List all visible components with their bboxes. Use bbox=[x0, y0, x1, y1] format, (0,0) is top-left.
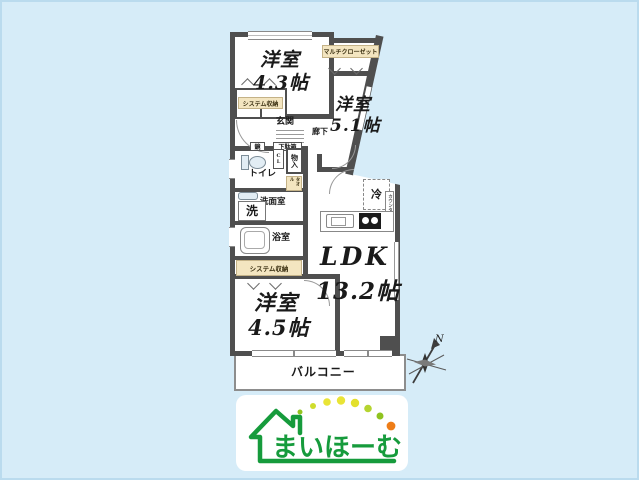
balcony-label: バルコニー bbox=[291, 366, 356, 378]
window-left-toilet bbox=[229, 159, 235, 179]
closet-cl-label: CL bbox=[276, 153, 282, 165]
washbasin-icon bbox=[238, 192, 258, 200]
logo: まいほーむ bbox=[236, 395, 408, 471]
floorplan-page: システム収納 マルチクローゼット 玄関 下駄箱 鏡 廊下 トイレ CL 物入 タ… bbox=[0, 0, 639, 480]
bathtub-icon bbox=[240, 227, 270, 254]
multi-closet-label: マルチクローゼット bbox=[323, 47, 377, 56]
mullion bbox=[367, 351, 369, 356]
compass-icon: N bbox=[402, 332, 450, 390]
system-storage-top-label-box: システム収納 bbox=[238, 97, 283, 109]
system-storage-bottom-box: システム収納 bbox=[236, 260, 302, 276]
sink-basin bbox=[331, 217, 346, 226]
sliding-window-left bbox=[252, 350, 336, 357]
corridor-label: 廊下 bbox=[312, 127, 328, 135]
compass-north-label: N bbox=[434, 334, 445, 345]
toilet-bowl-icon bbox=[249, 156, 266, 169]
logo-graphic: まいほーむ bbox=[236, 395, 408, 471]
ldk-size: 13.2帖 bbox=[316, 272, 400, 306]
multi-closet-label-box: マルチクローゼット bbox=[322, 45, 379, 58]
mirror-label-box: 鏡 bbox=[250, 142, 265, 151]
window-left-bath bbox=[229, 227, 235, 247]
logo-dot bbox=[337, 396, 345, 404]
window-top bbox=[248, 31, 312, 40]
logo-dot bbox=[387, 422, 396, 431]
towel-label: タオル bbox=[288, 177, 300, 190]
logo-dot bbox=[310, 403, 316, 409]
wall-wash-bath bbox=[232, 221, 306, 225]
kitchen-sink-icon bbox=[326, 214, 354, 228]
logo-brand-text: まいほーむ bbox=[272, 433, 402, 463]
burner bbox=[371, 217, 378, 224]
washing-machine-icon: 洗 bbox=[238, 201, 266, 221]
logo-dot bbox=[364, 405, 372, 413]
fridge-label: 冷 bbox=[371, 188, 382, 201]
logo-dot bbox=[298, 410, 303, 415]
storage-divider bbox=[260, 109, 262, 119]
towel-box: タオル bbox=[286, 176, 302, 191]
room-45-size: 4.5帖 bbox=[248, 312, 310, 342]
toilet-tank-icon bbox=[241, 155, 249, 170]
washer-label: 洗 bbox=[246, 205, 258, 217]
room-43-size: 4.3帖 bbox=[253, 68, 309, 95]
system-storage-top-label: システム収納 bbox=[243, 99, 279, 108]
room-51-size: 5.1帖 bbox=[330, 111, 381, 136]
mono-ire-box: 物入 bbox=[286, 148, 303, 174]
bathtub-inner bbox=[244, 231, 265, 249]
mirror-label: 鏡 bbox=[254, 142, 260, 151]
logo-dot bbox=[377, 413, 384, 420]
system-storage-bottom-label: システム収納 bbox=[250, 263, 289, 273]
sliding-window-right bbox=[344, 350, 392, 357]
ldk-name: LDK bbox=[320, 242, 390, 271]
mono-ire-label: 物入 bbox=[290, 154, 300, 168]
mullion bbox=[293, 351, 295, 356]
logo-dot bbox=[323, 398, 331, 406]
burner bbox=[362, 217, 369, 224]
entrance-label: 玄関 bbox=[276, 118, 294, 127]
logo-dot bbox=[351, 399, 359, 407]
window-line bbox=[248, 35, 312, 36]
toilet-label: トイレ bbox=[249, 170, 276, 179]
closet-cl-box: CL bbox=[273, 149, 284, 169]
stove-icon bbox=[359, 213, 381, 229]
bathroom-label: 浴室 bbox=[272, 234, 290, 243]
